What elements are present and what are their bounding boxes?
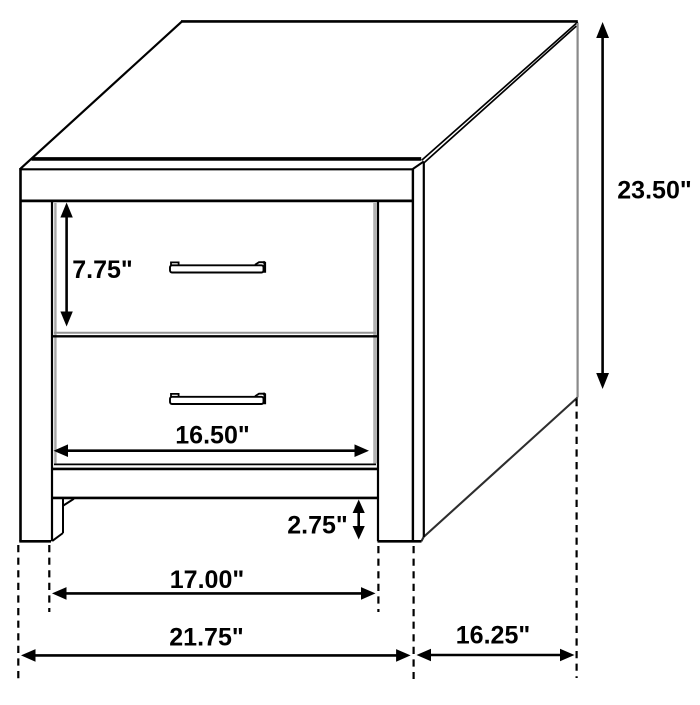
svg-text:21.75": 21.75" — [169, 624, 243, 652]
svg-text:17.00": 17.00" — [170, 566, 244, 594]
svg-text:23.50": 23.50" — [617, 177, 691, 205]
svg-text:7.75": 7.75" — [72, 256, 133, 284]
svg-text:16.25": 16.25" — [456, 622, 530, 650]
svg-text:2.75": 2.75" — [287, 512, 348, 540]
svg-text:16.50": 16.50" — [175, 421, 249, 449]
